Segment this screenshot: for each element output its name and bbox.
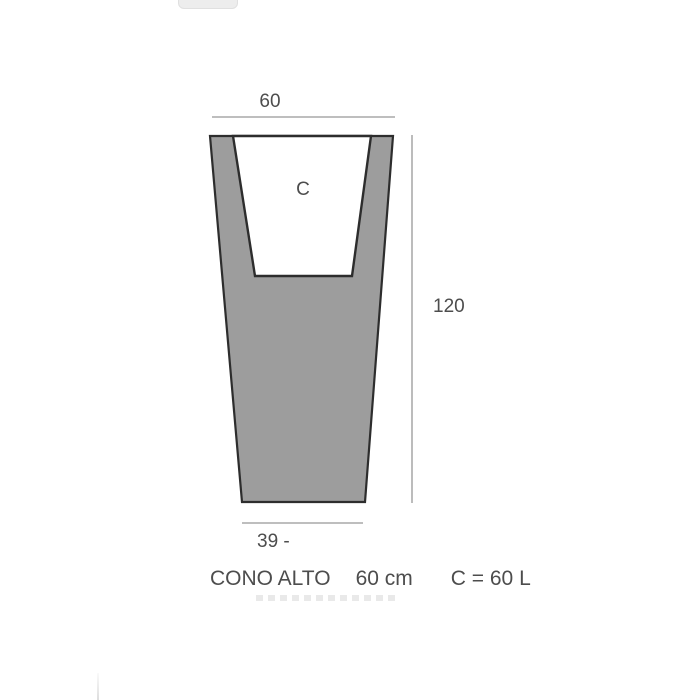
bottom-width-label: 39 - (257, 532, 290, 552)
cavity-volume-label: C (288, 180, 318, 200)
product-name-label: CONO ALTO (210, 567, 331, 590)
page: 60 120 39 - C CONO ALTO60 cmC = 60 L (0, 0, 700, 700)
cropped-text-remnant (256, 595, 396, 601)
product-capacity-label: C = 60 L (451, 567, 531, 590)
top-width-label: 60 (250, 92, 290, 112)
caption-row: CONO ALTO60 cmC = 60 L (210, 568, 531, 590)
product-size-label: 60 cm (356, 567, 413, 590)
artifact-line-bottom-left (97, 673, 99, 700)
pot-cavity-shape (233, 136, 371, 276)
height-label: 120 (433, 297, 465, 317)
